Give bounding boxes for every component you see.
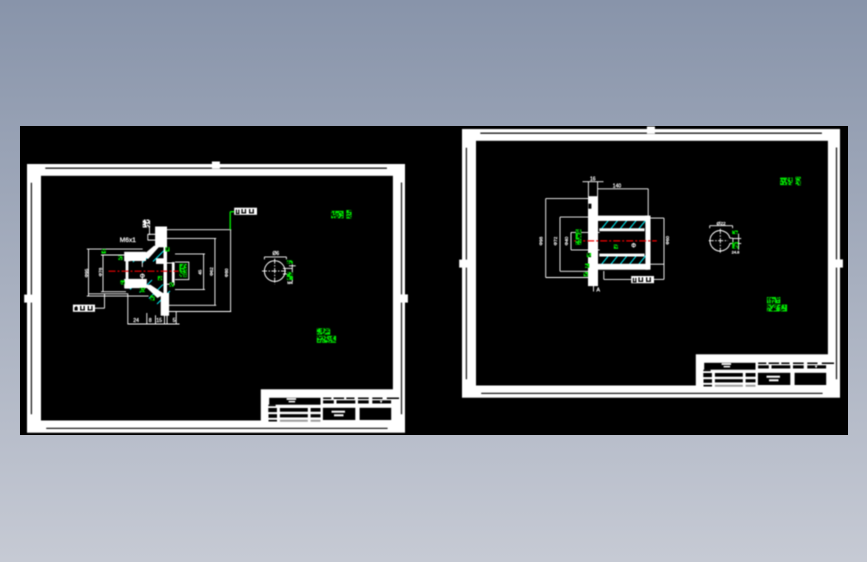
svg-text:140: 140	[613, 183, 622, 189]
svg-text:Φ95: Φ95	[84, 268, 89, 277]
svg-text:Φ80: Φ80	[224, 268, 229, 277]
svg-text:8: 8	[149, 318, 152, 324]
svg-text:Ø22: Ø22	[716, 220, 725, 226]
svg-text:5: 5	[172, 318, 175, 324]
svg-text:45: 45	[197, 269, 202, 275]
svg-text:M4: M4	[287, 280, 293, 285]
svg-text:Φ: Φ	[631, 243, 636, 249]
svg-text:Φ60: Φ60	[665, 235, 670, 244]
svg-text:M6x1: M6x1	[120, 237, 136, 244]
svg-text:24: 24	[133, 318, 139, 324]
svg-text:Ø6: Ø6	[272, 251, 279, 257]
svg-text:Φ62: Φ62	[209, 267, 214, 276]
svg-text:Φ78: Φ78	[98, 267, 103, 276]
svg-text:Φ40: Φ40	[564, 236, 569, 245]
svg-text:16: 16	[590, 176, 596, 182]
svg-text:15: 15	[156, 318, 162, 324]
svg-text:Φ72: Φ72	[553, 236, 558, 245]
svg-text:Φ98: Φ98	[538, 236, 543, 245]
svg-text:A: A	[596, 287, 600, 293]
svg-text:24.8: 24.8	[731, 249, 740, 254]
